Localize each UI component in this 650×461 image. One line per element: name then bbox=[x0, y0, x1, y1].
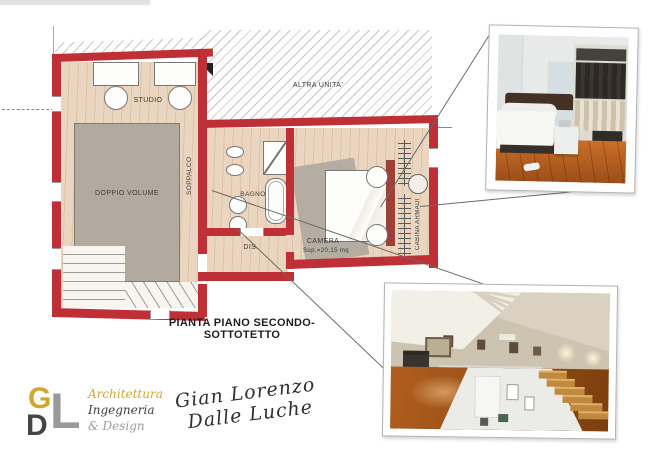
ceiling-beam bbox=[390, 290, 532, 301]
desk-icon bbox=[154, 62, 196, 86]
wall-divider-vertical-lower bbox=[198, 284, 207, 317]
logo-letter-d: D bbox=[26, 411, 48, 441]
beamed-ceiling bbox=[391, 290, 522, 350]
stair-step bbox=[555, 387, 585, 395]
bedroom-photo bbox=[485, 24, 639, 193]
window-opening bbox=[52, 96, 61, 112]
room-label-camera: CAMERA bbox=[300, 238, 346, 245]
attic-photo-image bbox=[390, 290, 610, 431]
wall-dis-bottom bbox=[198, 272, 294, 281]
desk-icon bbox=[93, 62, 139, 86]
pillow-icon bbox=[366, 166, 388, 188]
plan-title: PIANTA PIANO SECONDO-SOTTOTETTO bbox=[132, 317, 352, 341]
altra-unita-hatch-area bbox=[202, 30, 432, 122]
wall-picture bbox=[477, 340, 485, 350]
room-label-dis: DIS. bbox=[236, 244, 266, 251]
lower-level-item bbox=[480, 418, 488, 426]
room-label-altra-unita: ALTRA UNITA' bbox=[268, 82, 368, 89]
stair-step bbox=[578, 411, 610, 419]
stairs-icon bbox=[63, 246, 125, 308]
logo-block: G D L Architettura Ingegneria & Design G… bbox=[24, 384, 394, 454]
stairs-winder-icon bbox=[125, 282, 198, 308]
lower-level-picture bbox=[524, 396, 534, 410]
hanging-clothes-dark bbox=[575, 62, 626, 99]
wall-picture bbox=[509, 342, 518, 353]
bedroom-photo-image bbox=[495, 35, 628, 184]
scanned-floorplan-page: ALTRA UNITA' DOPPIO VOLUME STUDIO SOPPAL… bbox=[0, 0, 650, 461]
stair-step bbox=[570, 403, 602, 411]
wall-divider-vertical bbox=[198, 54, 207, 254]
wall-lamp-glow bbox=[584, 349, 602, 367]
nightstand-item bbox=[559, 120, 571, 127]
logo-field-architettura: Architettura bbox=[88, 386, 163, 402]
wardrobe-rail bbox=[404, 140, 405, 186]
closet-shelf-items bbox=[576, 48, 626, 61]
ac-unit bbox=[499, 334, 515, 340]
room-label-soppalco: SOPPALCO bbox=[186, 145, 193, 207]
room-label-bagno: BAGNO bbox=[232, 191, 274, 198]
wall-camera-door-stub bbox=[286, 252, 294, 269]
stair-step bbox=[539, 371, 567, 379]
logo-field-design: & Design bbox=[88, 418, 163, 434]
pillow-icon bbox=[366, 224, 388, 246]
wall-picture bbox=[533, 346, 541, 355]
bidet-icon bbox=[226, 164, 244, 176]
lower-level-plant bbox=[498, 414, 508, 422]
room-label-cabina-armadi: CABINA ARMADI bbox=[415, 185, 421, 263]
logo-fields: Architettura Ingegneria & Design bbox=[88, 386, 163, 434]
stair-step bbox=[547, 379, 575, 387]
window-opening bbox=[52, 248, 61, 270]
lower-level-picture bbox=[506, 384, 518, 400]
wardrobe-rail bbox=[404, 194, 405, 256]
window-opening bbox=[429, 148, 438, 168]
attic-photo bbox=[382, 282, 618, 439]
stair-step bbox=[562, 395, 592, 403]
room-label-doppio-volume: DOPPIO VOLUME bbox=[77, 190, 177, 197]
room-label-camera-area: Sup.=20,15 mq bbox=[298, 248, 354, 254]
cube-nightstand bbox=[554, 126, 579, 155]
window-opening bbox=[52, 182, 61, 202]
lower-level-shelf bbox=[474, 376, 501, 418]
toilet-icon bbox=[226, 146, 244, 158]
room-label-studio: STUDIO bbox=[120, 97, 176, 104]
wall-right bbox=[429, 120, 438, 268]
hanging-clothes-light bbox=[575, 100, 626, 131]
bathtub-icon bbox=[265, 178, 287, 224]
logo-letter-l: L bbox=[50, 386, 81, 436]
bed-base bbox=[500, 145, 554, 154]
shower-icon bbox=[263, 141, 287, 175]
wall-lamp-glow bbox=[556, 343, 576, 363]
logo-field-ingegneria: Ingegneria bbox=[88, 402, 163, 418]
